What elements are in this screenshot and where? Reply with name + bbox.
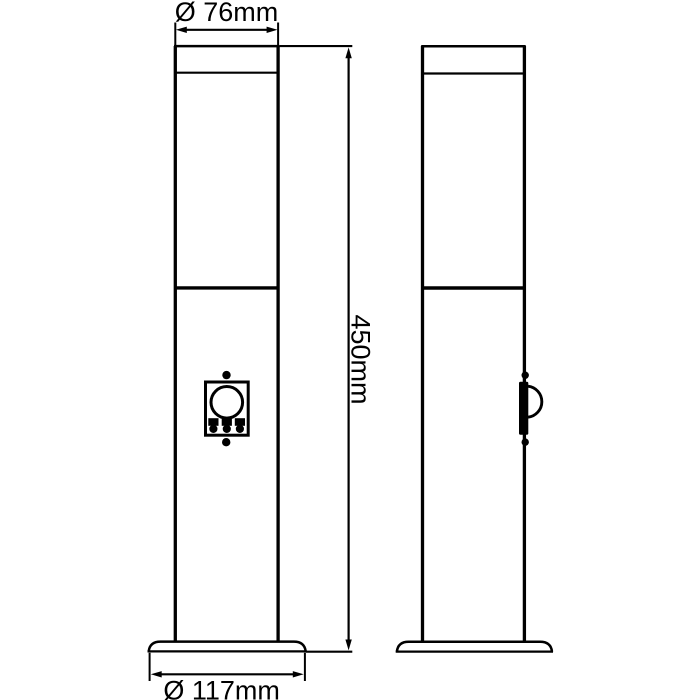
svg-text:Ø 76mm: Ø 76mm: [175, 0, 279, 27]
svg-text:450mm: 450mm: [346, 314, 376, 404]
svg-text:Ø 117mm: Ø 117mm: [163, 676, 280, 700]
